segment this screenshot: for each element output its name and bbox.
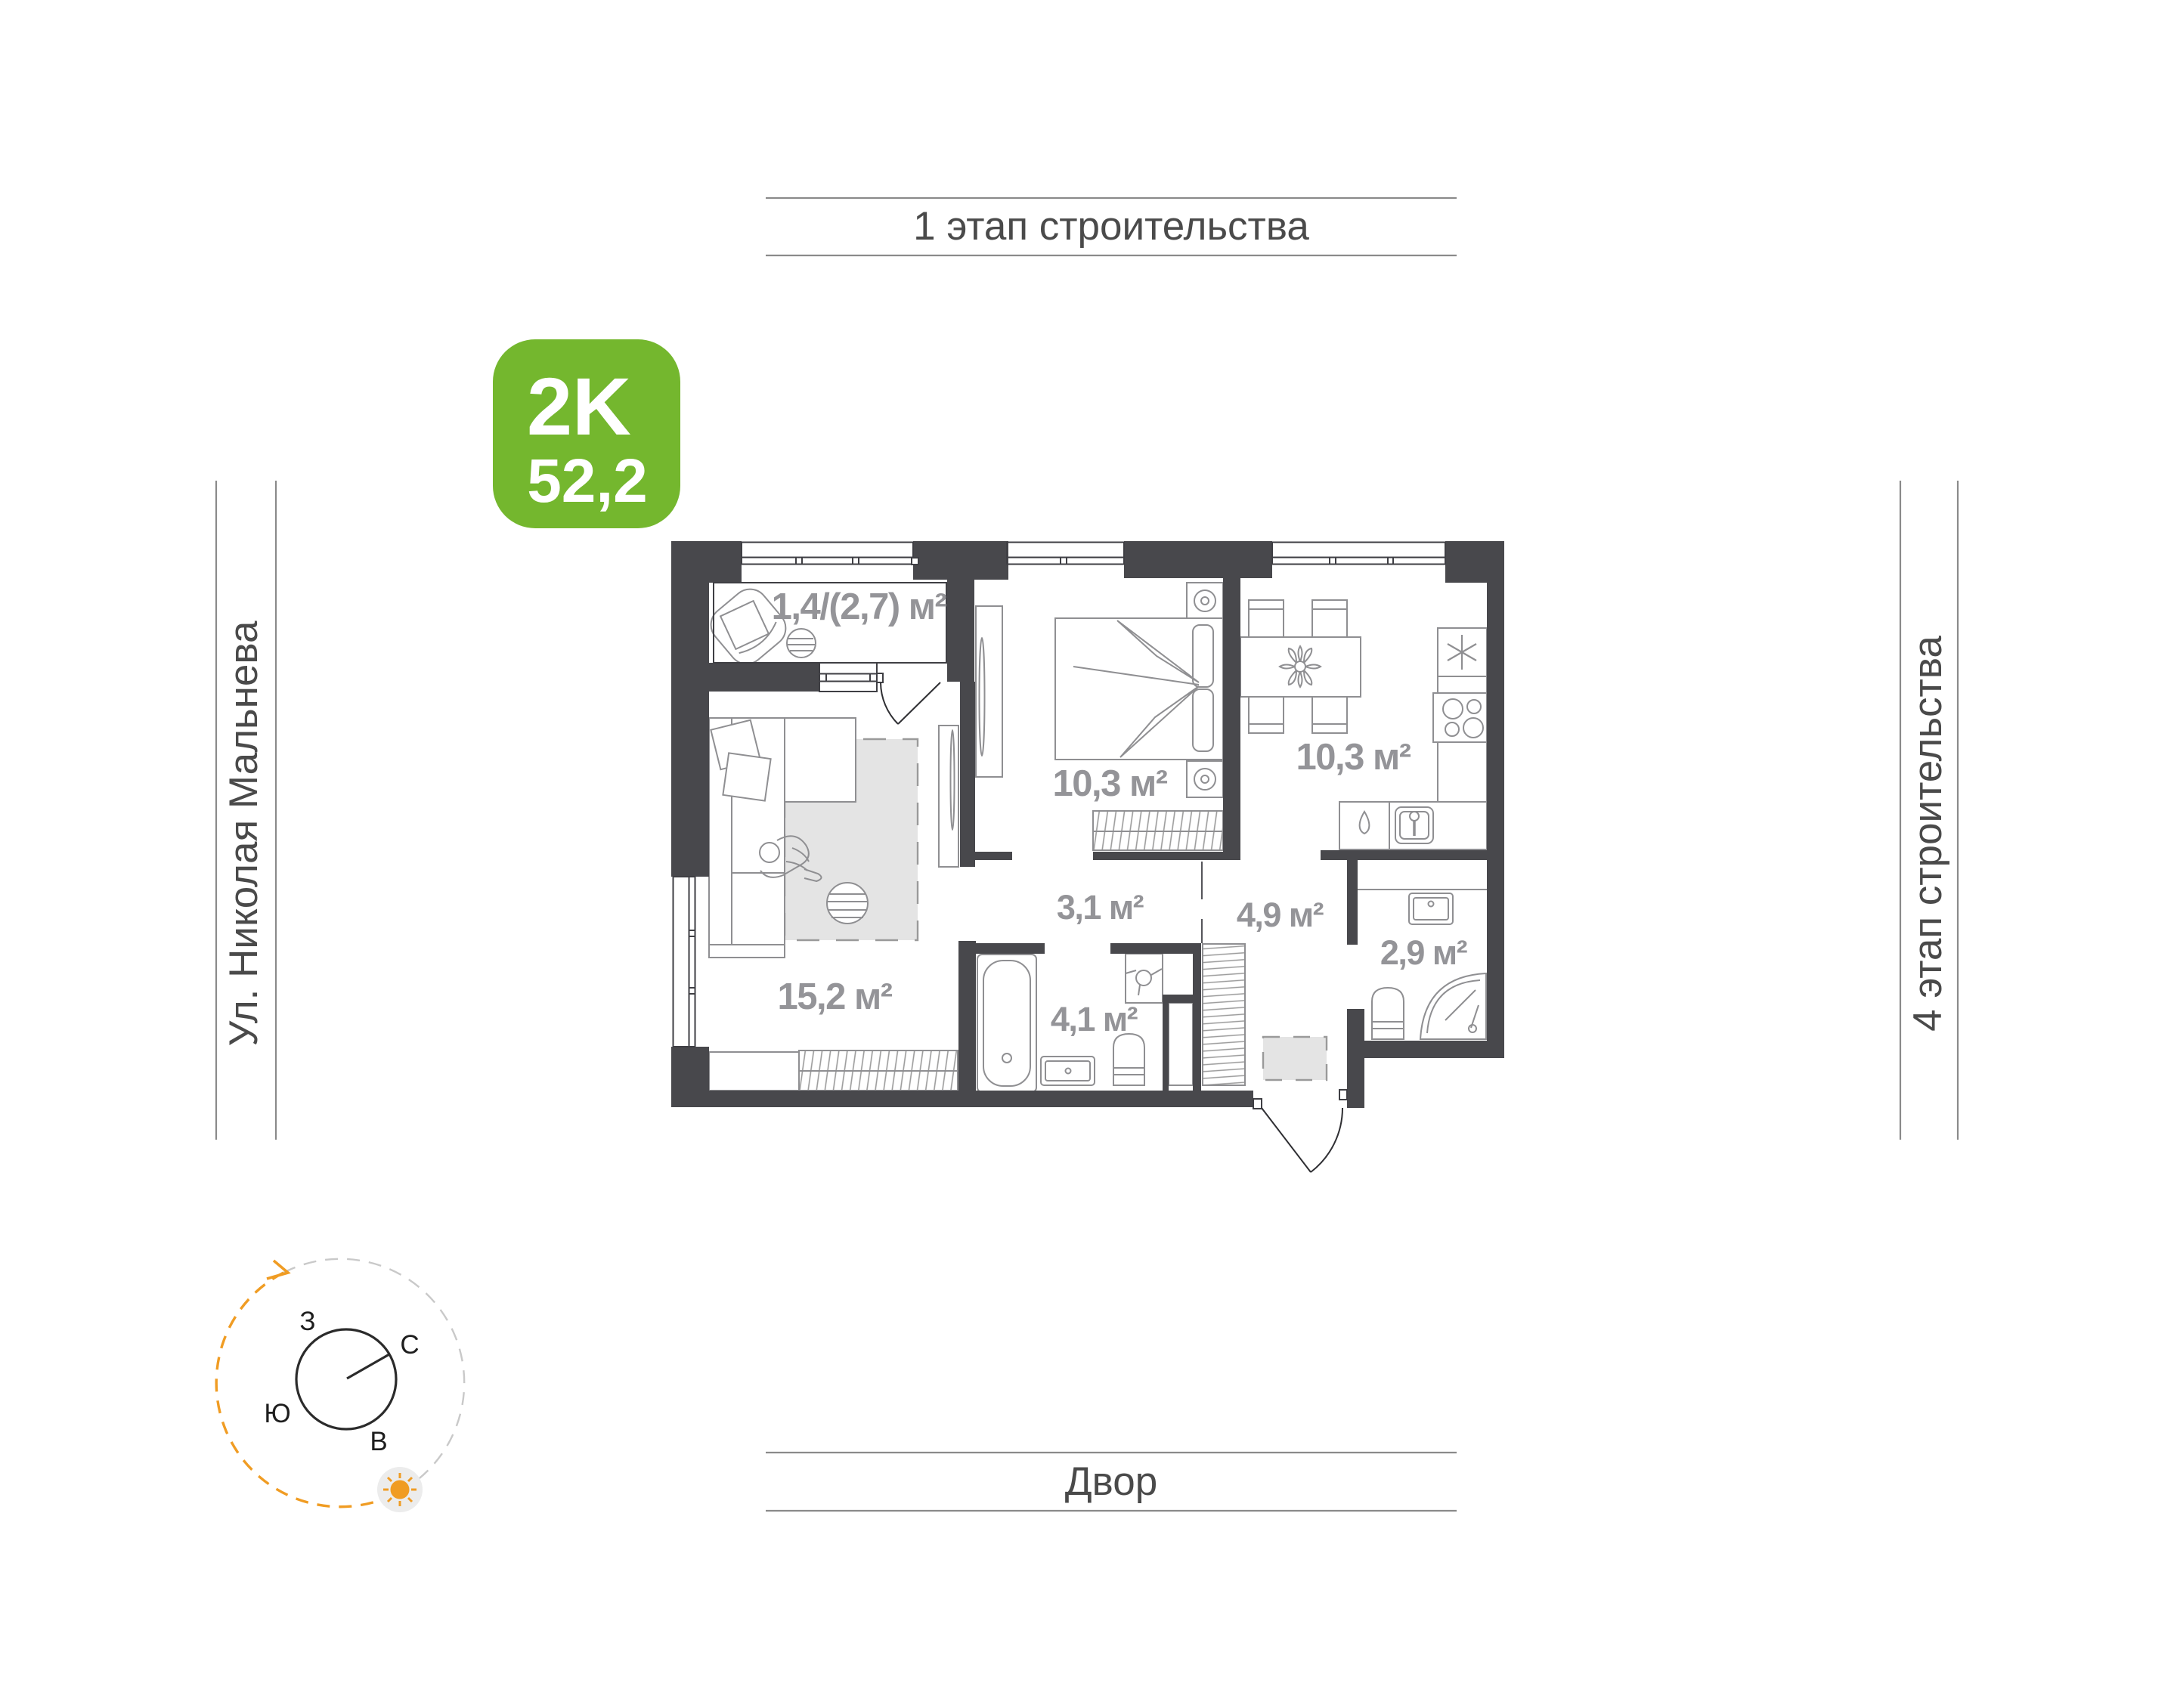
svg-text:3,1 м²: 3,1 м² [1057,888,1144,927]
svg-text:Ю: Ю [264,1399,290,1428]
svg-text:З: З [299,1307,315,1336]
svg-text:Ул. Николая Мальнева: Ул. Николая Мальнева [221,620,266,1046]
svg-text:15,2 м²: 15,2 м² [777,976,892,1017]
svg-text:2K: 2K [527,360,631,452]
svg-text:Двор: Двор [1065,1459,1157,1504]
svg-text:В: В [370,1427,387,1456]
svg-text:52,2: 52,2 [527,447,648,515]
svg-text:10,3 м²: 10,3 м² [1296,737,1411,778]
svg-text:4 этап строительства: 4 этап строительства [1906,636,1950,1032]
svg-text:10,3 м²: 10,3 м² [1052,763,1167,804]
svg-text:4,1 м²: 4,1 м² [1051,1000,1138,1038]
svg-text:2,9 м²: 2,9 м² [1380,933,1468,972]
svg-text:4,9 м²: 4,9 м² [1237,896,1324,934]
svg-text:1 этап строительства: 1 этап строительства [913,204,1309,249]
svg-text:С: С [400,1330,419,1360]
svg-text:1,4/(2,7) м²: 1,4/(2,7) м² [772,586,947,627]
